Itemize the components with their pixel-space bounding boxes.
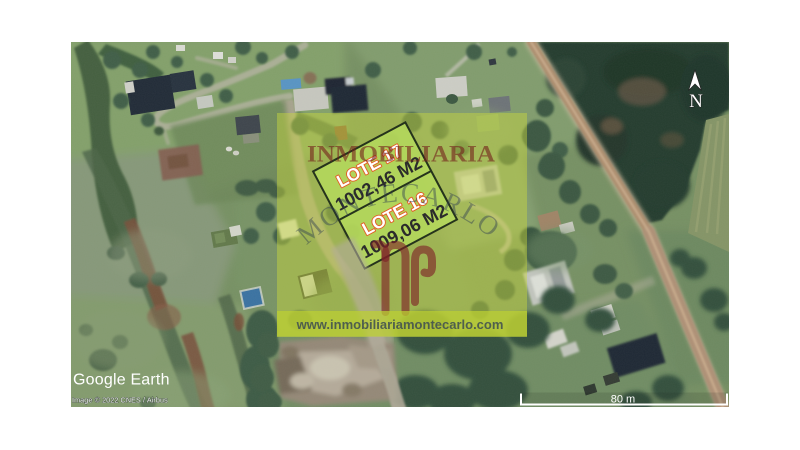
svg-text:INMOBILIARIA: INMOBILIARIA bbox=[307, 142, 495, 167]
svg-text:N: N bbox=[689, 91, 703, 112]
svg-text:Google Earth: Google Earth bbox=[73, 372, 170, 389]
svg-text:80 m: 80 m bbox=[611, 394, 635, 406]
svg-text:www.inmobiliariamontecarlo.com: www.inmobiliariamontecarlo.com bbox=[296, 317, 504, 332]
svg-text:Image © 2022 CNES / Airbus: Image © 2022 CNES / Airbus bbox=[72, 396, 168, 405]
